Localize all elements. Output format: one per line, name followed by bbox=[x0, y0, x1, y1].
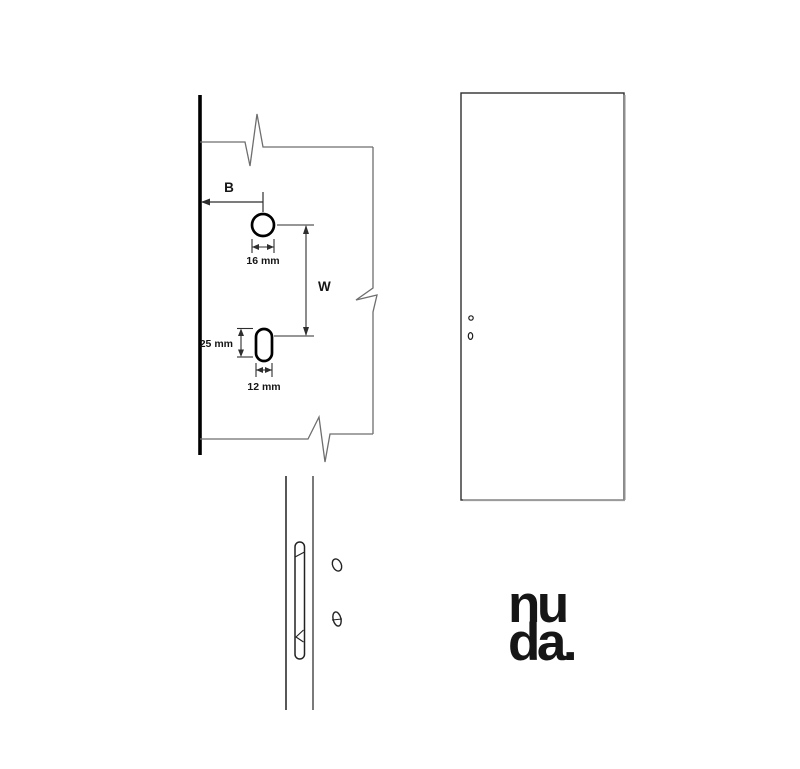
dim-b-arrow bbox=[201, 199, 210, 206]
dim-25mm: 25 mm bbox=[200, 329, 253, 358]
break-line-right bbox=[356, 147, 377, 434]
edge-strip-detail bbox=[286, 476, 343, 710]
break-line-bottom bbox=[200, 417, 373, 462]
dim-w-label: W bbox=[318, 279, 331, 294]
dim-w: W bbox=[274, 225, 331, 336]
dim-12mm-label: 12 mm bbox=[247, 381, 280, 393]
handle-hole-mark bbox=[331, 557, 344, 572]
door-front-view bbox=[461, 93, 625, 500]
nuda-logo: nu da. bbox=[508, 586, 574, 662]
dim-12mm: 12 mm bbox=[247, 363, 280, 393]
dim-16mm-label: 16 mm bbox=[246, 255, 279, 267]
edge-view-diagram: B 16 mm W bbox=[200, 95, 377, 462]
dim-b: B bbox=[201, 180, 263, 212]
dim-25mm-label: 25 mm bbox=[200, 338, 233, 350]
nuda-logo-line2: da. bbox=[508, 624, 574, 662]
technical-drawing: B 16 mm W bbox=[0, 0, 800, 764]
break-line-top bbox=[200, 114, 373, 166]
drawing-sheet: B 16 mm W bbox=[0, 0, 800, 764]
dim-16mm: 16 mm bbox=[246, 239, 279, 267]
handle-hole-circle bbox=[252, 214, 274, 236]
slot-hole bbox=[256, 329, 272, 361]
lock-hole-mark bbox=[331, 611, 342, 627]
dim-b-label: B bbox=[224, 180, 234, 195]
door-outline bbox=[461, 93, 624, 500]
